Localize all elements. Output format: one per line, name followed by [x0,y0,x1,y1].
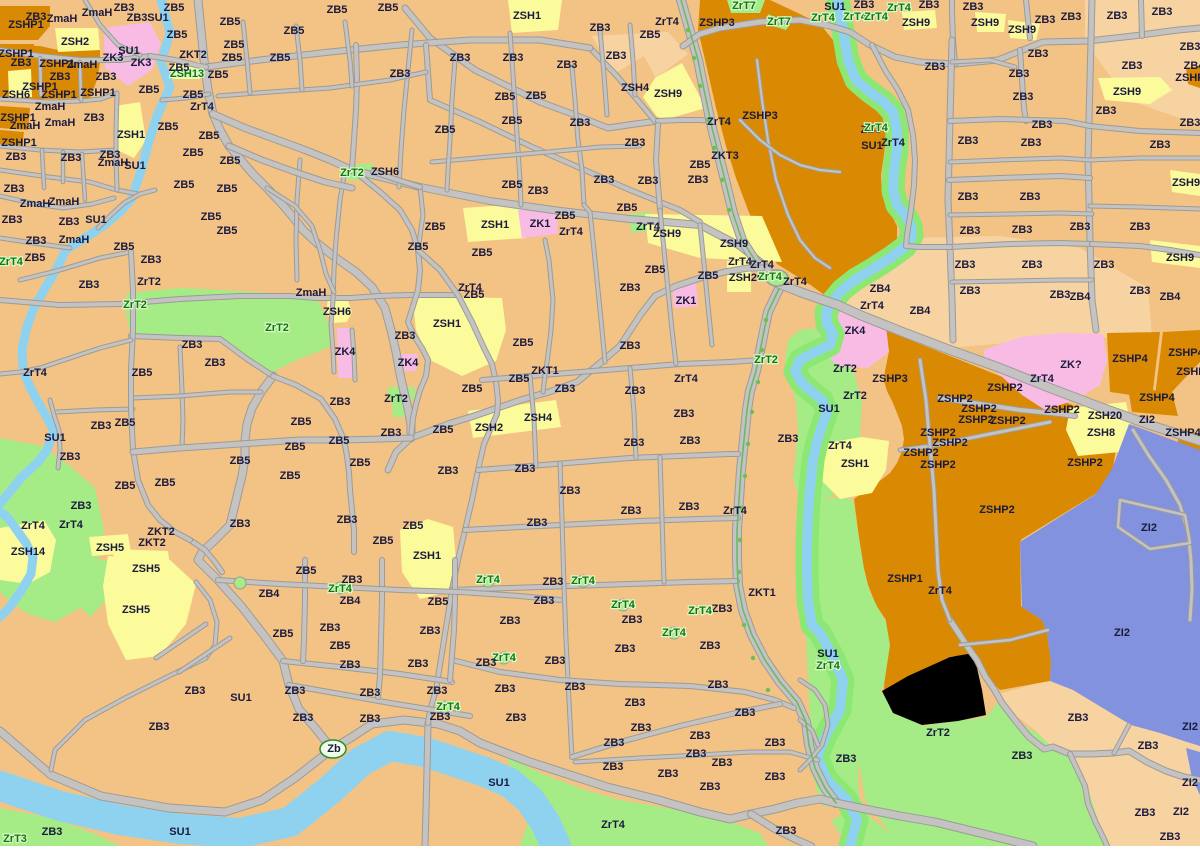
svg-text:ZSH5: ZSH5 [122,604,150,616]
svg-text:ZB3: ZB3 [84,112,105,124]
svg-text:ZSH4: ZSH4 [524,412,553,424]
svg-text:SU1: SU1 [817,648,838,660]
svg-text:ZB3: ZB3 [340,659,361,671]
svg-text:ZB3: ZB3 [79,279,100,291]
svg-text:ZSH6: ZSH6 [323,306,351,318]
svg-text:ZSHP1: ZSHP1 [887,573,922,585]
svg-text:ZrT2: ZrT2 [833,363,857,375]
svg-text:ZB3: ZB3 [182,339,203,351]
svg-text:ZB3: ZB3 [1122,60,1143,72]
svg-text:ZB3: ZB3 [1012,750,1033,762]
svg-text:ZmaH: ZmaH [67,59,98,71]
svg-text:ZB5: ZB5 [373,535,394,547]
svg-text:ZrT2: ZrT2 [340,167,364,179]
svg-text:ZSHP3: ZSHP3 [699,17,734,29]
svg-text:ZB3: ZB3 [528,185,549,197]
svg-text:ZK1: ZK1 [676,295,697,307]
svg-text:ZB3: ZB3 [765,737,786,749]
svg-text:ZB4: ZB4 [910,305,932,317]
svg-text:ZSH2: ZSH2 [475,422,503,434]
svg-text:ZK4: ZK4 [845,325,867,337]
svg-text:SU1: SU1 [118,45,139,57]
svg-text:ZB3: ZB3 [1035,14,1056,26]
svg-text:ZB3: ZB3 [1050,289,1071,301]
svg-text:ZB3: ZB3 [700,640,721,652]
svg-text:ZSHP2: ZSHP2 [1175,72,1200,84]
svg-text:ZB5: ZB5 [509,373,530,385]
svg-text:ZSH2: ZSH2 [61,36,89,48]
svg-text:ZB3: ZB3 [438,465,459,477]
svg-text:ZrT4: ZrT4 [611,599,636,611]
svg-text:ZrT4: ZrT4 [559,226,584,238]
svg-text:ZB5: ZB5 [285,441,306,453]
svg-text:ZB4: ZB4 [1160,291,1182,303]
svg-text:ZK4: ZK4 [398,357,420,369]
svg-text:ZB4: ZB4 [259,588,281,600]
svg-text:ZB3: ZB3 [59,216,80,228]
svg-text:ZB3: ZB3 [925,61,946,73]
svg-text:ZB3: ZB3 [26,235,47,247]
svg-text:ZrT4: ZrT4 [688,605,713,617]
svg-text:ZrT4: ZrT4 [728,256,753,268]
svg-text:ZB3: ZB3 [1107,10,1128,22]
svg-text:ZSH6: ZSH6 [371,166,399,178]
svg-text:ZB3: ZB3 [615,643,636,655]
svg-text:ZB3: ZB3 [1070,221,1091,233]
svg-text:ZB3: ZB3 [638,175,659,187]
svg-text:ZrT7: ZrT7 [767,16,791,28]
svg-text:ZB3: ZB3 [1094,259,1115,271]
svg-text:ZB3: ZB3 [395,330,416,342]
svg-text:ZB5: ZB5 [183,147,204,159]
svg-text:ZrT4: ZrT4 [59,519,84,531]
svg-text:ZSH9: ZSH9 [1172,177,1200,189]
svg-text:ZrT4: ZrT4 [662,627,687,639]
svg-text:ZB3: ZB3 [515,463,536,475]
svg-text:ZB3: ZB3 [543,576,564,588]
svg-text:ZB3: ZB3 [42,826,63,838]
svg-text:ZB3: ZB3 [960,285,981,297]
svg-text:ZSH1: ZSH1 [413,550,441,562]
svg-text:ZB3: ZB3 [1013,91,1034,103]
svg-text:ZrT4: ZrT4 [571,575,596,587]
svg-text:ZKT1: ZKT1 [531,365,559,377]
svg-text:ZB3: ZB3 [500,615,521,627]
svg-text:ZB5: ZB5 [25,252,46,264]
svg-text:ZB5: ZB5 [296,565,317,577]
svg-text:ZB3: ZB3 [1180,41,1200,53]
svg-text:ZrT4: ZrT4 [864,122,889,134]
svg-text:SU1: SU1 [818,403,839,415]
svg-text:ZSHP4: ZSHP4 [1139,392,1175,404]
svg-text:ZI2: ZI2 [1141,522,1157,534]
svg-text:ZB5: ZB5 [208,69,229,81]
svg-text:ZB3: ZB3 [620,340,641,352]
svg-text:ZrT4: ZrT4 [476,574,501,586]
svg-text:ZB3: ZB3 [2,214,23,226]
svg-text:ZB3: ZB3 [185,685,206,697]
svg-text:ZB5: ZB5 [495,91,516,103]
svg-text:ZB5: ZB5 [217,183,238,195]
svg-text:ZB5: ZB5 [502,115,523,127]
svg-text:ZB5: ZB5 [403,520,424,532]
svg-text:ZrT4: ZrT4 [328,583,353,595]
svg-text:ZB3: ZB3 [71,500,92,512]
svg-text:ZB3: ZB3 [60,451,81,463]
svg-text:ZSHP2: ZSHP2 [990,415,1025,427]
svg-text:ZSHP2: ZSHP2 [987,382,1022,394]
svg-text:ZSH1: ZSH1 [513,10,541,22]
svg-text:ZB5: ZB5 [217,225,238,237]
svg-text:ZB5: ZB5 [158,121,179,133]
svg-text:ZrT4: ZrT4 [674,373,699,385]
svg-text:ZB3: ZB3 [624,437,645,449]
svg-text:ZB3: ZB3 [127,12,148,24]
svg-text:ZI2: ZI2 [1114,627,1130,639]
svg-text:ZB3: ZB3 [1028,48,1049,60]
svg-text:ZK1: ZK1 [530,218,551,230]
svg-text:ZB5: ZB5 [167,29,188,41]
svg-text:ZB5: ZB5 [645,264,666,276]
svg-text:ZrT4: ZrT4 [21,520,46,532]
svg-text:ZSH8: ZSH8 [1087,427,1115,439]
svg-text:ZB3: ZB3 [963,1,984,13]
svg-text:ZB3: ZB3 [622,614,643,626]
svg-text:ZB5: ZB5 [502,179,523,191]
svg-text:ZB3: ZB3 [674,408,695,420]
svg-text:ZB3: ZB3 [4,183,25,195]
svg-text:ZB5: ZB5 [330,640,351,652]
svg-text:ZB3: ZB3 [1152,6,1173,18]
svg-text:ZB4: ZB4 [340,595,362,607]
svg-text:ZB3: ZB3 [776,825,797,837]
svg-text:ZB4: ZB4 [1184,60,1200,72]
svg-text:ZB3: ZB3 [958,135,979,147]
svg-text:ZrT2: ZrT2 [843,390,867,402]
svg-text:ZB5: ZB5 [220,16,241,28]
svg-text:ZB3: ZB3 [408,658,429,670]
svg-text:ZrT2: ZrT2 [754,354,778,366]
svg-text:ZB3: ZB3 [625,385,646,397]
svg-text:ZSHP1: ZSHP1 [1,137,36,149]
svg-text:ZKT3: ZKT3 [711,150,739,162]
svg-text:ZB3: ZB3 [1150,139,1171,151]
svg-text:ZB5: ZB5 [169,62,190,74]
svg-text:ZB3: ZB3 [1138,740,1159,752]
svg-text:ZB5: ZB5 [114,241,135,253]
svg-text:ZB3: ZB3 [621,505,642,517]
svg-text:ZB3: ZB3 [495,683,516,695]
svg-text:ZB3: ZB3 [205,357,226,369]
svg-text:ZB5: ZB5 [378,2,399,14]
svg-text:ZSH20: ZSH20 [1088,410,1122,422]
svg-text:SU1: SU1 [169,826,190,838]
svg-text:ZB5: ZB5 [280,470,301,482]
svg-text:ZB5: ZB5 [428,596,449,608]
svg-text:ZrT4: ZrT4 [758,271,783,283]
svg-text:ZB5: ZB5 [139,84,160,96]
svg-text:ZSH1: ZSH1 [117,129,145,141]
svg-text:ZI2: ZI2 [1182,777,1198,789]
svg-text:ZB3: ZB3 [955,259,976,271]
svg-text:ZB3: ZB3 [631,722,652,734]
svg-text:ZB5: ZB5 [291,416,312,428]
svg-text:ZSHP2: ZSHP2 [920,459,955,471]
svg-text:ZrT7: ZrT7 [732,0,756,12]
svg-text:ZB5: ZB5 [183,89,204,101]
svg-text:ZmaH: ZmaH [45,117,76,129]
svg-text:ZB3: ZB3 [1135,807,1156,819]
svg-text:SU1: SU1 [230,692,251,704]
svg-text:ZB3: ZB3 [680,435,701,447]
svg-text:ZB3: ZB3 [1096,105,1117,117]
svg-text:ZB3: ZB3 [712,757,733,769]
svg-text:ZB3: ZB3 [230,518,251,530]
svg-text:ZB5: ZB5 [555,210,576,222]
svg-text:ZB3: ZB3 [590,22,611,34]
svg-text:ZB3: ZB3 [420,625,441,637]
svg-text:ZB3: ZB3 [735,707,756,719]
svg-text:ZrT4: ZrT4 [601,819,626,831]
svg-text:ZB5: ZB5 [224,39,245,51]
svg-text:SU1: SU1 [861,140,882,152]
svg-text:ZK3: ZK3 [131,57,152,69]
svg-text:ZB5: ZB5 [174,179,195,191]
svg-text:ZB3: ZB3 [360,687,381,699]
svg-text:ZSH9: ZSH9 [654,88,682,100]
svg-text:ZrT2: ZrT2 [137,276,161,288]
svg-text:ZB3: ZB3 [527,517,548,529]
svg-text:ZSH9: ZSH9 [1008,24,1036,36]
svg-text:ZSHP4: ZSHP4 [1112,353,1148,365]
svg-text:ZB3: ZB3 [534,595,555,607]
svg-text:ZmaH: ZmaH [10,120,41,132]
svg-text:ZB5: ZB5 [270,52,291,64]
svg-text:ZrT4: ZrT4 [436,701,461,713]
svg-text:ZSHP1: ZSHP1 [80,87,115,99]
svg-text:ZB3: ZB3 [1160,831,1181,843]
svg-text:ZSHP1: ZSHP1 [41,89,76,101]
svg-text:ZB3: ZB3 [1009,68,1030,80]
svg-text:ZSH9: ZSH9 [1113,86,1141,98]
svg-text:ZK?: ZK? [1060,359,1082,371]
svg-text:ZB3: ZB3 [836,753,857,765]
svg-text:ZB5: ZB5 [329,435,350,447]
svg-text:ZmaH: ZmaH [47,13,78,25]
svg-text:ZB5: ZB5 [115,417,136,429]
svg-text:ZB3: ZB3 [594,174,615,186]
svg-text:ZrT4: ZrT4 [750,259,775,271]
svg-text:ZSHP2: ZSHP2 [979,504,1014,516]
svg-text:ZrT4: ZrT4 [190,101,215,113]
svg-text:ZSH1: ZSH1 [433,318,461,330]
svg-text:ZB3: ZB3 [390,68,411,80]
svg-text:ZSH9: ZSH9 [971,17,999,29]
svg-text:ZSHP4: ZSHP4 [1176,366,1200,378]
svg-text:ZB3: ZB3 [11,57,32,69]
svg-text:ZB3: ZB3 [360,713,381,725]
svg-text:ZB3: ZB3 [545,655,566,667]
svg-text:ZB3: ZB3 [625,137,646,149]
svg-text:ZB3: ZB3 [6,151,27,163]
svg-text:ZB3: ZB3 [700,781,721,793]
svg-text:ZSH14: ZSH14 [11,546,46,558]
svg-text:ZB5: ZB5 [433,424,454,436]
svg-text:ZB3: ZB3 [620,282,641,294]
svg-text:ZSH9: ZSH9 [1166,252,1194,264]
svg-text:ZB3: ZB3 [555,383,576,395]
svg-text:ZB3: ZB3 [565,681,586,693]
svg-text:SU1: SU1 [124,160,145,172]
svg-text:ZB3: ZB3 [658,768,679,780]
svg-text:ZB5: ZB5 [408,241,429,253]
svg-text:ZB5: ZB5 [327,4,348,16]
svg-text:ZB3: ZB3 [381,427,402,439]
svg-text:ZB3: ZB3 [708,679,729,691]
svg-text:ZB3: ZB3 [690,730,711,742]
svg-text:ZB4: ZB4 [870,283,892,295]
svg-text:ZSH1: ZSH1 [481,219,509,231]
svg-text:ZSHP3: ZSHP3 [872,373,907,385]
svg-text:ZrT4: ZrT4 [828,440,853,452]
svg-text:ZrT2: ZrT2 [384,393,408,405]
svg-text:ZB5: ZB5 [155,477,176,489]
svg-text:ZB5: ZB5 [425,221,446,233]
svg-text:ZB3: ZB3 [503,52,524,64]
svg-text:ZB5: ZB5 [698,270,719,282]
svg-text:ZrT4: ZrT4 [723,505,748,517]
svg-text:ZSHP2: ZSHP2 [1044,404,1079,416]
svg-text:ZB3: ZB3 [778,433,799,445]
svg-text:ZrT4: ZrT4 [887,2,912,14]
svg-text:ZI2: ZI2 [1182,721,1198,733]
svg-text:ZSHP2: ZSHP2 [958,414,993,426]
svg-text:ZB3: ZB3 [330,396,351,408]
svg-text:ZmaH: ZmaH [20,198,51,210]
svg-text:ZB3: ZB3 [679,501,700,513]
svg-text:ZSH6: ZSH6 [2,89,30,101]
svg-text:ZB3: ZB3 [96,71,117,83]
svg-text:ZSHP4: ZSHP4 [1165,427,1200,439]
svg-text:ZB3: ZB3 [604,737,625,749]
svg-text:ZB3: ZB3 [1020,191,1041,203]
svg-text:ZB3: ZB3 [625,697,646,709]
svg-text:ZrT4: ZrT4 [811,12,836,24]
svg-text:ZKT2: ZKT2 [138,537,166,549]
svg-text:ZSHP1: ZSHP1 [8,19,43,31]
svg-text:ZB3: ZB3 [958,191,979,203]
svg-text:ZrT4: ZrT4 [816,660,841,672]
svg-text:ZSH4: ZSH4 [621,82,650,94]
svg-text:ZB3: ZB3 [450,52,471,64]
svg-text:ZB5: ZB5 [199,130,220,142]
svg-text:ZB3: ZB3 [141,254,162,266]
svg-text:ZB3: ZB3 [50,71,71,83]
svg-text:ZB3: ZB3 [1012,224,1033,236]
svg-text:ZB5: ZB5 [472,247,493,259]
svg-text:ZrT4: ZrT4 [0,256,24,268]
svg-text:SU1: SU1 [44,432,65,444]
svg-text:ZB3: ZB3 [570,117,591,129]
svg-text:ZB3: ZB3 [606,50,627,62]
svg-text:ZB5: ZB5 [284,25,305,37]
svg-text:ZmaH: ZmaH [59,234,90,246]
svg-text:ZB3: ZB3 [557,59,578,71]
svg-text:ZB5: ZB5 [640,29,661,41]
svg-text:ZB3: ZB3 [1130,221,1151,233]
svg-text:ZB3: ZB3 [1061,11,1082,23]
svg-text:ZB3: ZB3 [854,0,875,11]
svg-text:Zb: Zb [327,743,341,755]
svg-text:ZB5: ZB5 [201,211,222,223]
svg-text:ZSHP2: ZSHP2 [1067,457,1102,469]
svg-text:ZB3: ZB3 [960,225,981,237]
svg-text:ZB3: ZB3 [149,721,170,733]
svg-text:ZmaH: ZmaH [296,287,327,299]
svg-text:ZSH9: ZSH9 [653,228,681,240]
svg-text:ZmaH: ZmaH [82,7,113,19]
svg-text:ZmaH: ZmaH [49,196,80,208]
svg-text:ZrT4: ZrT4 [458,282,483,294]
svg-text:ZB5: ZB5 [350,457,371,469]
svg-text:ZB3: ZB3 [476,657,497,669]
svg-text:ZK4: ZK4 [335,346,357,358]
svg-text:ZB5: ZB5 [462,383,483,395]
svg-text:ZB5: ZB5 [526,90,547,102]
svg-text:ZSHP3: ZSHP3 [742,110,777,122]
svg-text:ZB3: ZB3 [712,603,733,615]
svg-text:ZB5: ZB5 [220,155,241,167]
svg-text:ZSH9: ZSH9 [720,238,748,250]
svg-text:ZB3: ZB3 [320,622,341,634]
svg-text:ZB3: ZB3 [427,685,448,697]
svg-text:ZB5: ZB5 [273,628,294,640]
svg-text:ZSHP4: ZSHP4 [1168,347,1200,359]
svg-text:SU1: SU1 [85,214,106,226]
svg-text:ZKT2: ZKT2 [179,49,207,61]
svg-text:ZB3: ZB3 [1032,119,1053,131]
svg-text:ZB5: ZB5 [435,124,456,136]
svg-text:ZB3: ZB3 [1180,117,1200,129]
svg-text:ZB5: ZB5 [115,480,136,492]
svg-text:ZB3: ZB3 [506,712,527,724]
svg-text:ZB3: ZB3 [1021,137,1042,149]
svg-text:ZB5: ZB5 [164,2,185,14]
svg-text:ZB3: ZB3 [1130,285,1151,297]
svg-text:ZrT2: ZrT2 [123,299,147,311]
svg-text:ZrT4: ZrT4 [1030,373,1055,385]
svg-text:ZB5: ZB5 [222,52,243,64]
svg-text:ZB3: ZB3 [61,152,82,164]
svg-text:ZrT4: ZrT4 [23,367,48,379]
svg-text:ZrT2: ZrT2 [926,727,950,739]
svg-text:ZB3: ZB3 [765,771,786,783]
svg-text:ZrT2: ZrT2 [265,322,289,334]
svg-text:ZB3: ZB3 [1022,259,1043,271]
svg-text:ZB3: ZB3 [686,748,707,760]
svg-text:ZB5: ZB5 [513,337,534,349]
svg-text:ZI2: ZI2 [1173,806,1189,818]
svg-text:ZB3: ZB3 [337,514,358,526]
svg-text:SU1: SU1 [488,777,509,789]
svg-text:ZB3: ZB3 [285,685,306,697]
svg-text:ZB3: ZB3 [293,712,314,724]
svg-text:ZrT4: ZrT4 [783,276,808,288]
svg-text:ZSH1: ZSH1 [841,458,869,470]
svg-text:ZrT4: ZrT4 [881,137,906,149]
svg-text:ZSH5: ZSH5 [132,563,160,575]
svg-text:ZB3: ZB3 [560,485,581,497]
